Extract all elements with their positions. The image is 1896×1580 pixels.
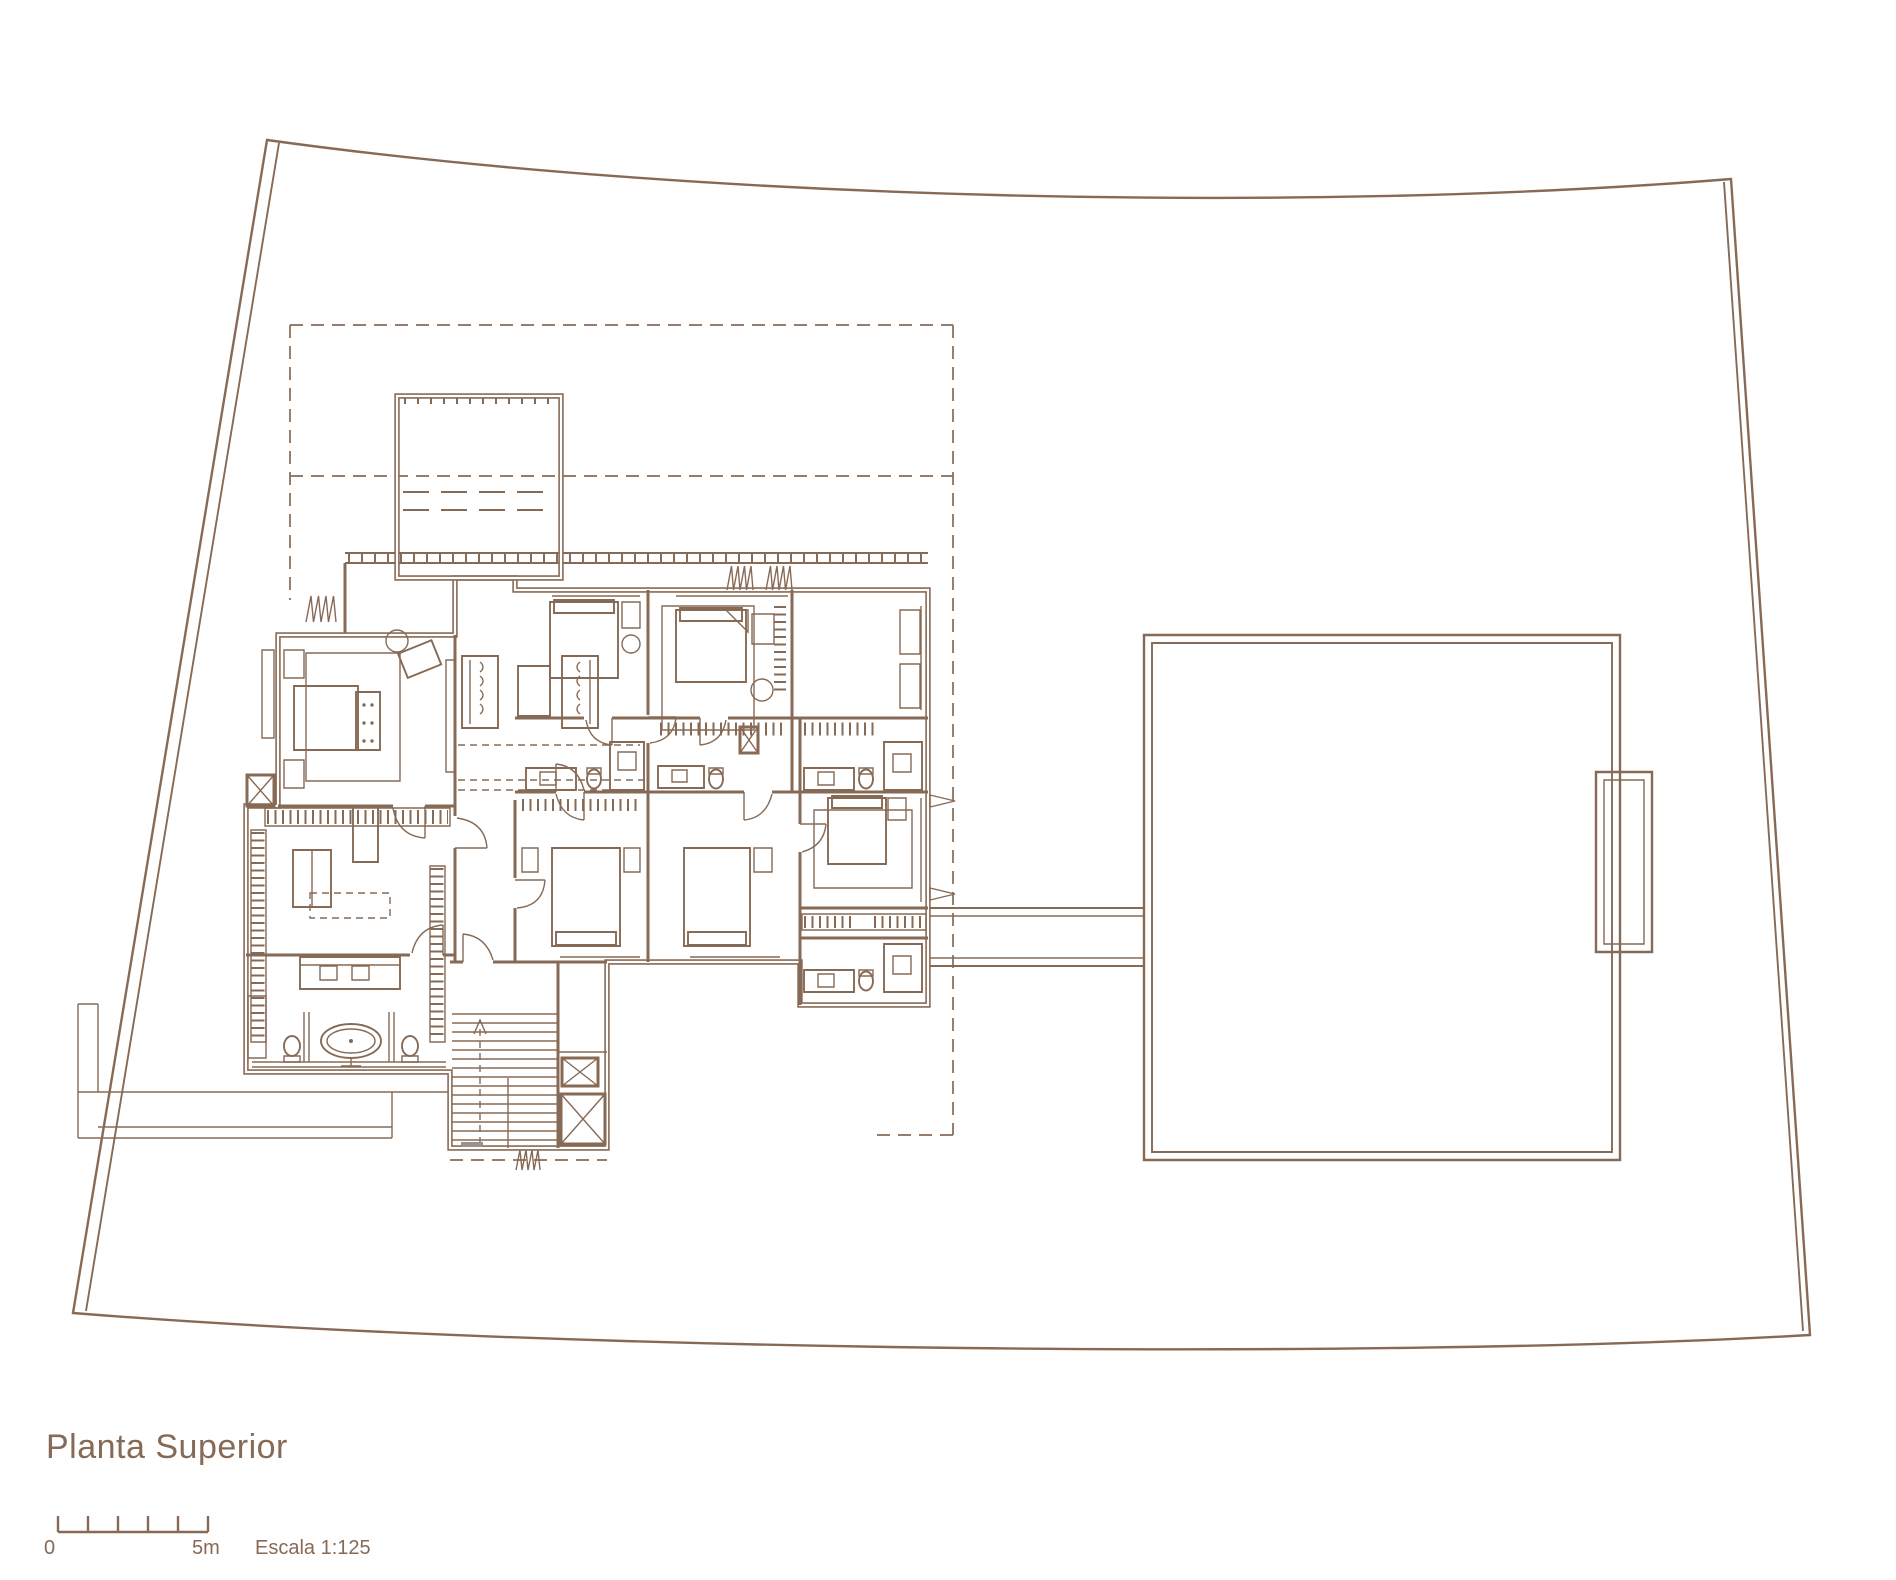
- site-boundary: [73, 140, 1810, 1349]
- elevator-and-shafts: [247, 727, 758, 1144]
- scale-ratio-label: Escala 1:125: [255, 1537, 371, 1560]
- staircase: [452, 1014, 558, 1148]
- floor-plan-drawing: [0, 0, 1896, 1580]
- plan-sheet: Planta Superior 0 5m Escala 1:125: [0, 0, 1896, 1580]
- living-area-furniture: [446, 656, 598, 772]
- scale-bar: [58, 1516, 208, 1532]
- interior-partitions: [246, 590, 928, 1148]
- detached-structure: [1144, 635, 1652, 1160]
- master-bedroom-furniture: [262, 630, 441, 788]
- window-zigzag-symbols: [306, 566, 955, 1170]
- bedrooms-furniture: [522, 596, 921, 957]
- scale-start-label: 0: [44, 1537, 55, 1560]
- connecting-walkway: [928, 908, 1144, 966]
- scale-end-label: 5m: [192, 1537, 220, 1560]
- wardrobe-hatching: [251, 729, 926, 1042]
- page-title: Planta Superior: [46, 1428, 288, 1467]
- stair-threshold: [461, 1142, 483, 1147]
